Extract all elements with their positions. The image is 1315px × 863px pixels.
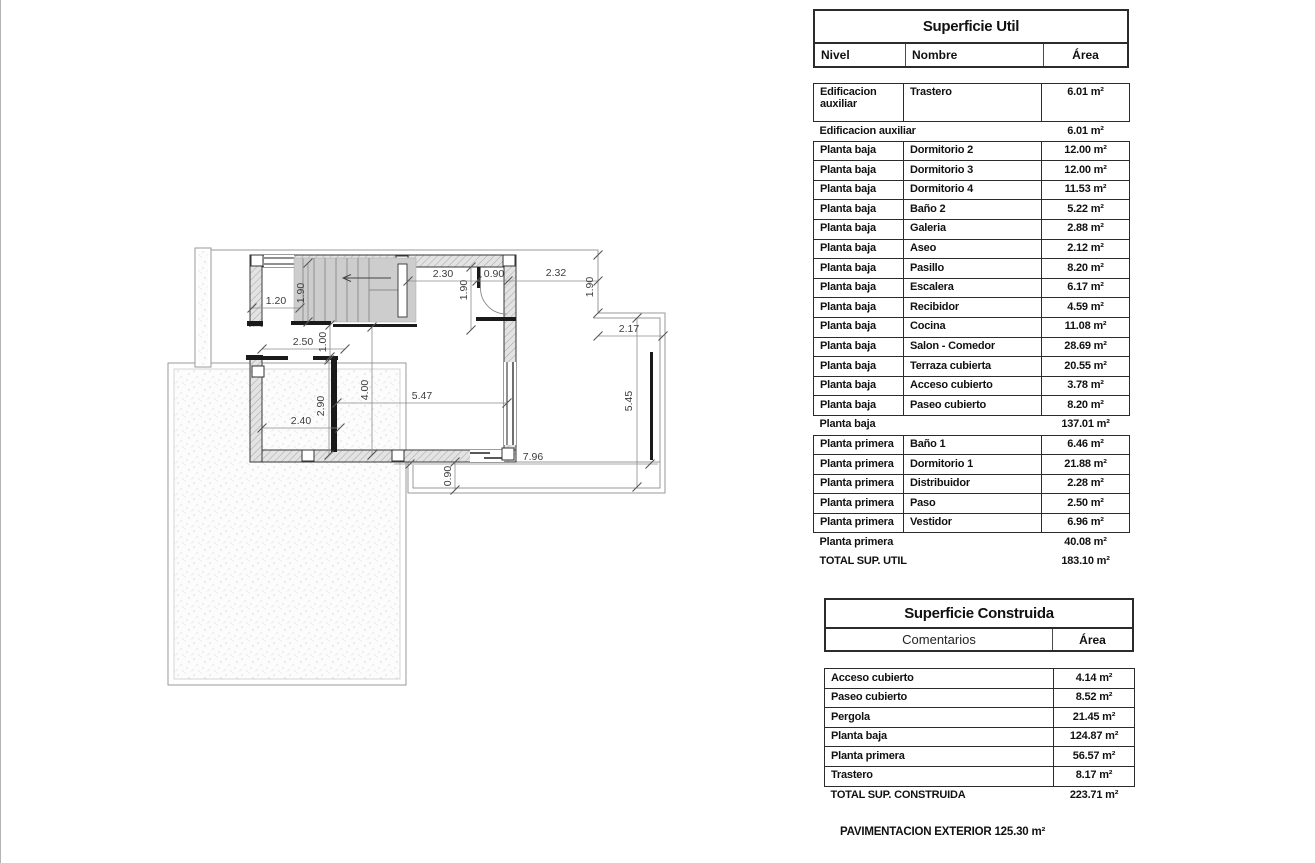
subtotal-row: Planta primera 40.08 m² <box>814 533 1130 552</box>
table-cell: Dormitorio 1 <box>904 455 1042 475</box>
table-cell: Planta baja <box>814 180 904 200</box>
table-row: Planta bajaAseo2.12 m² <box>814 239 1130 259</box>
superficie-util-header: Superficie Util Nivel Nombre Área <box>813 9 1129 68</box>
window-top <box>264 255 294 267</box>
table-cell: Vestidor <box>904 513 1042 533</box>
table-cell: 21.45 m² <box>1054 708 1135 728</box>
subtotal-label: Edificacion auxiliar <box>814 122 1042 142</box>
table-cell: Galeria <box>904 219 1042 239</box>
table-row: Edificacion auxiliar Trastero 6.01 m² <box>814 84 1130 122</box>
page-left-border <box>0 0 1 863</box>
table-cell: Cocina <box>904 317 1042 337</box>
table-cell: Terraza cubierta <box>904 357 1042 377</box>
table-cell: 6.01 m² <box>1042 84 1130 122</box>
table-cell: 4.59 m² <box>1042 298 1130 318</box>
table-cell: 2.12 m² <box>1042 239 1130 259</box>
stair-railing <box>398 264 407 317</box>
table-cell: Salon - Comedor <box>904 337 1042 357</box>
subtotal-area: 6.01 m² <box>1042 122 1130 142</box>
table-cell: 12.00 m² <box>1042 141 1130 161</box>
table-cell: 8.20 m² <box>1042 396 1130 416</box>
table-cell: 8.52 m² <box>1054 688 1135 708</box>
table-row: Trastero8.17 m² <box>825 766 1135 786</box>
table-cell: 28.69 m² <box>1042 337 1130 357</box>
table-row: Planta bajaEscalera6.17 m² <box>814 278 1130 298</box>
table-cell: Planta primera <box>814 474 904 494</box>
table-cell: Recibidor <box>904 298 1042 318</box>
dimension-label: 1.00 <box>317 332 329 353</box>
superficie-construida-table: Acceso cubierto4.14 m²Paseo cubierto8.52… <box>824 668 1135 805</box>
table-cell: 56.57 m² <box>1054 747 1135 767</box>
dimension-label: 4.00 <box>359 380 371 401</box>
table-cell: Dormitorio 4 <box>904 180 1042 200</box>
table-row: Planta bajaDormitorio 212.00 m² <box>814 141 1130 161</box>
total-label: TOTAL SUP. CONSTRUIDA <box>825 786 1054 805</box>
table-cell: Planta baja <box>814 357 904 377</box>
table-row: Planta bajaPasillo8.20 m² <box>814 259 1130 279</box>
dimension-label: 5.45 <box>623 391 635 412</box>
table-row: Planta primeraDistribuidor2.28 m² <box>814 474 1130 494</box>
table-row: Paseo cubierto8.52 m² <box>825 688 1135 708</box>
table-row: Acceso cubierto4.14 m² <box>825 669 1135 689</box>
pavimentacion-exterior-note: PAVIMENTACION EXTERIOR 125.30 m² <box>840 826 1045 838</box>
table-cell: Planta baja <box>814 161 904 181</box>
table-row: Planta bajaCocina11.08 m² <box>814 317 1130 337</box>
table-cell: Pergola <box>825 708 1054 728</box>
table-cell: Planta primera <box>814 455 904 475</box>
subtotal-label: Planta primera <box>814 533 1042 552</box>
superficie-construida-header: Superficie Construida Comentarios Área <box>824 598 1134 652</box>
table-row: Planta bajaTerraza cubierta20.55 m² <box>814 357 1130 377</box>
dimension-label: 1.20 <box>266 295 287 307</box>
dimension-label: 2.50 <box>293 336 314 348</box>
table-cell: 6.46 m² <box>1042 435 1130 455</box>
table-row: Planta primera56.57 m² <box>825 747 1135 767</box>
column-header-nombre: Nombre <box>905 44 1043 66</box>
door-swing-arc <box>481 288 507 314</box>
table-cell: Planta baja <box>814 298 904 318</box>
table-cell: Paso <box>904 494 1042 514</box>
table-cell: Planta baja <box>814 239 904 259</box>
table-cell: Dormitorio 2 <box>904 141 1042 161</box>
superficie-util-title: Superficie Util <box>815 11 1127 44</box>
table-cell: 20.55 m² <box>1042 357 1130 377</box>
sliding-door-bottom <box>470 450 504 462</box>
table-cell: 12.00 m² <box>1042 161 1130 181</box>
table-row: Planta primeraVestidor6.96 m² <box>814 513 1130 533</box>
table-cell: 6.17 m² <box>1042 278 1130 298</box>
table-cell: 8.20 m² <box>1042 259 1130 279</box>
subtotal-label: Planta baja <box>814 415 1042 435</box>
dimension-label: 1.90 <box>295 283 307 304</box>
table-cell: Acceso cubierto <box>825 669 1054 689</box>
table-cell: Aseo <box>904 239 1042 259</box>
table-cell: 11.08 m² <box>1042 317 1130 337</box>
table-cell: Planta baja <box>814 376 904 396</box>
table-cell: Trastero <box>825 766 1054 786</box>
table-cell: Acceso cubierto <box>904 376 1042 396</box>
dimension-label: 0.90 <box>442 466 454 487</box>
table-row: Pergola21.45 m² <box>825 708 1135 728</box>
dimension-label: 5.47 <box>412 390 433 402</box>
table-cell: 21.88 m² <box>1042 455 1130 475</box>
table-row: Planta primeraPaso2.50 m² <box>814 494 1130 514</box>
table-cell: 3.78 m² <box>1042 376 1130 396</box>
dimension-label: 2.90 <box>315 396 327 417</box>
table-cell: Distribuidor <box>904 474 1042 494</box>
table-cell: Planta baja <box>814 141 904 161</box>
table-cell: Planta primera <box>814 494 904 514</box>
dimension-label: 2.30 <box>433 268 454 280</box>
subtotal-row: Planta baja 137.01 m² <box>814 415 1130 435</box>
subtotal-area: 40.08 m² <box>1042 533 1130 552</box>
total-area: 223.71 m² <box>1054 786 1135 805</box>
table-cell: Trastero <box>904 84 1042 122</box>
table-cell: 2.88 m² <box>1042 219 1130 239</box>
table-row: Planta bajaBaño 25.22 m² <box>814 200 1130 220</box>
table-cell: Paseo cubierto <box>825 688 1054 708</box>
table-cell: Baño 2 <box>904 200 1042 220</box>
table-cell: Planta primera <box>825 747 1054 767</box>
table-row: Planta bajaAcceso cubierto3.78 m² <box>814 376 1130 396</box>
table-cell: Planta baja <box>814 200 904 220</box>
table-cell: 2.50 m² <box>1042 494 1130 514</box>
table-cell: 11.53 m² <box>1042 180 1130 200</box>
table-cell: Planta baja <box>814 259 904 279</box>
table-row: Planta bajaDormitorio 411.53 m² <box>814 180 1130 200</box>
table-row: Planta bajaGaleria2.88 m² <box>814 219 1130 239</box>
staircase <box>291 258 417 327</box>
table-cell: 6.96 m² <box>1042 513 1130 533</box>
superficie-construida-title: Superficie Construida <box>826 600 1132 629</box>
table-cell: Baño 1 <box>904 435 1042 455</box>
dimension-label: 1.90 <box>458 280 470 301</box>
subtotal-area: 137.01 m² <box>1042 415 1130 435</box>
table-row: Planta baja124.87 m² <box>825 727 1135 747</box>
table-cell: 124.87 m² <box>1054 727 1135 747</box>
table-cell: Planta baja <box>814 219 904 239</box>
column-header-area: Área <box>1043 44 1127 66</box>
table-cell: 4.14 m² <box>1054 669 1135 689</box>
table-cell: Dormitorio 3 <box>904 161 1042 181</box>
table-cell: 5.22 m² <box>1042 200 1130 220</box>
dimension-label: 7.96 <box>523 451 544 463</box>
column-header-area: Área <box>1052 629 1132 650</box>
dimension-label: 0.90 <box>484 268 505 280</box>
table-cell: Paseo cubierto <box>904 396 1042 416</box>
dimension-label: 2.17 <box>619 323 640 335</box>
total-row: TOTAL SUP. UTIL 183.10 m² <box>814 552 1130 571</box>
dimension-label: 2.40 <box>291 415 312 427</box>
table-cell: Pasillo <box>904 259 1042 279</box>
table-cell: Planta baja <box>814 317 904 337</box>
table-cell: Planta baja <box>814 337 904 357</box>
table-row: Planta primeraDormitorio 121.88 m² <box>814 455 1130 475</box>
table-cell: 8.17 m² <box>1054 766 1135 786</box>
superficie-util-table: Edificacion auxiliar Trastero 6.01 m² Ed… <box>813 83 1130 571</box>
dimension-label: 2.32 <box>546 267 567 279</box>
table-row: Planta bajaPaseo cubierto8.20 m² <box>814 396 1130 416</box>
column-header-comentarios: Comentarios <box>826 629 1052 650</box>
total-row: TOTAL SUP. CONSTRUIDA 223.71 m² <box>825 786 1135 805</box>
total-label: TOTAL SUP. UTIL <box>814 552 1042 571</box>
subtotal-row: Edificacion auxiliar 6.01 m² <box>814 122 1130 142</box>
table-row: Planta primeraBaño 16.46 m² <box>814 435 1130 455</box>
table-cell: Planta primera <box>814 513 904 533</box>
table-row: Planta bajaDormitorio 312.00 m² <box>814 161 1130 181</box>
total-area: 183.10 m² <box>1042 552 1130 571</box>
table-row: Planta bajaRecibidor4.59 m² <box>814 298 1130 318</box>
architectural-plan-page: 2.30 0.90 2.32 1.20 2.50 2.40 5.47 2.17 … <box>0 0 1315 863</box>
table-cell: Planta baja <box>825 727 1054 747</box>
table-row: Planta bajaSalon - Comedor28.69 m² <box>814 337 1130 357</box>
table-cell: Planta primera <box>814 435 904 455</box>
table-cell: Planta baja <box>814 278 904 298</box>
dimension-label: 1.90 <box>584 277 596 298</box>
table-cell: Planta baja <box>814 396 904 416</box>
floor-plan: 2.30 0.90 2.32 1.20 2.50 2.40 5.47 2.17 … <box>140 235 700 705</box>
column-header-nivel: Nivel <box>815 44 905 66</box>
table-cell: Edificacion auxiliar <box>814 84 904 122</box>
table-cell: 2.28 m² <box>1042 474 1130 494</box>
table-cell: Escalera <box>904 278 1042 298</box>
